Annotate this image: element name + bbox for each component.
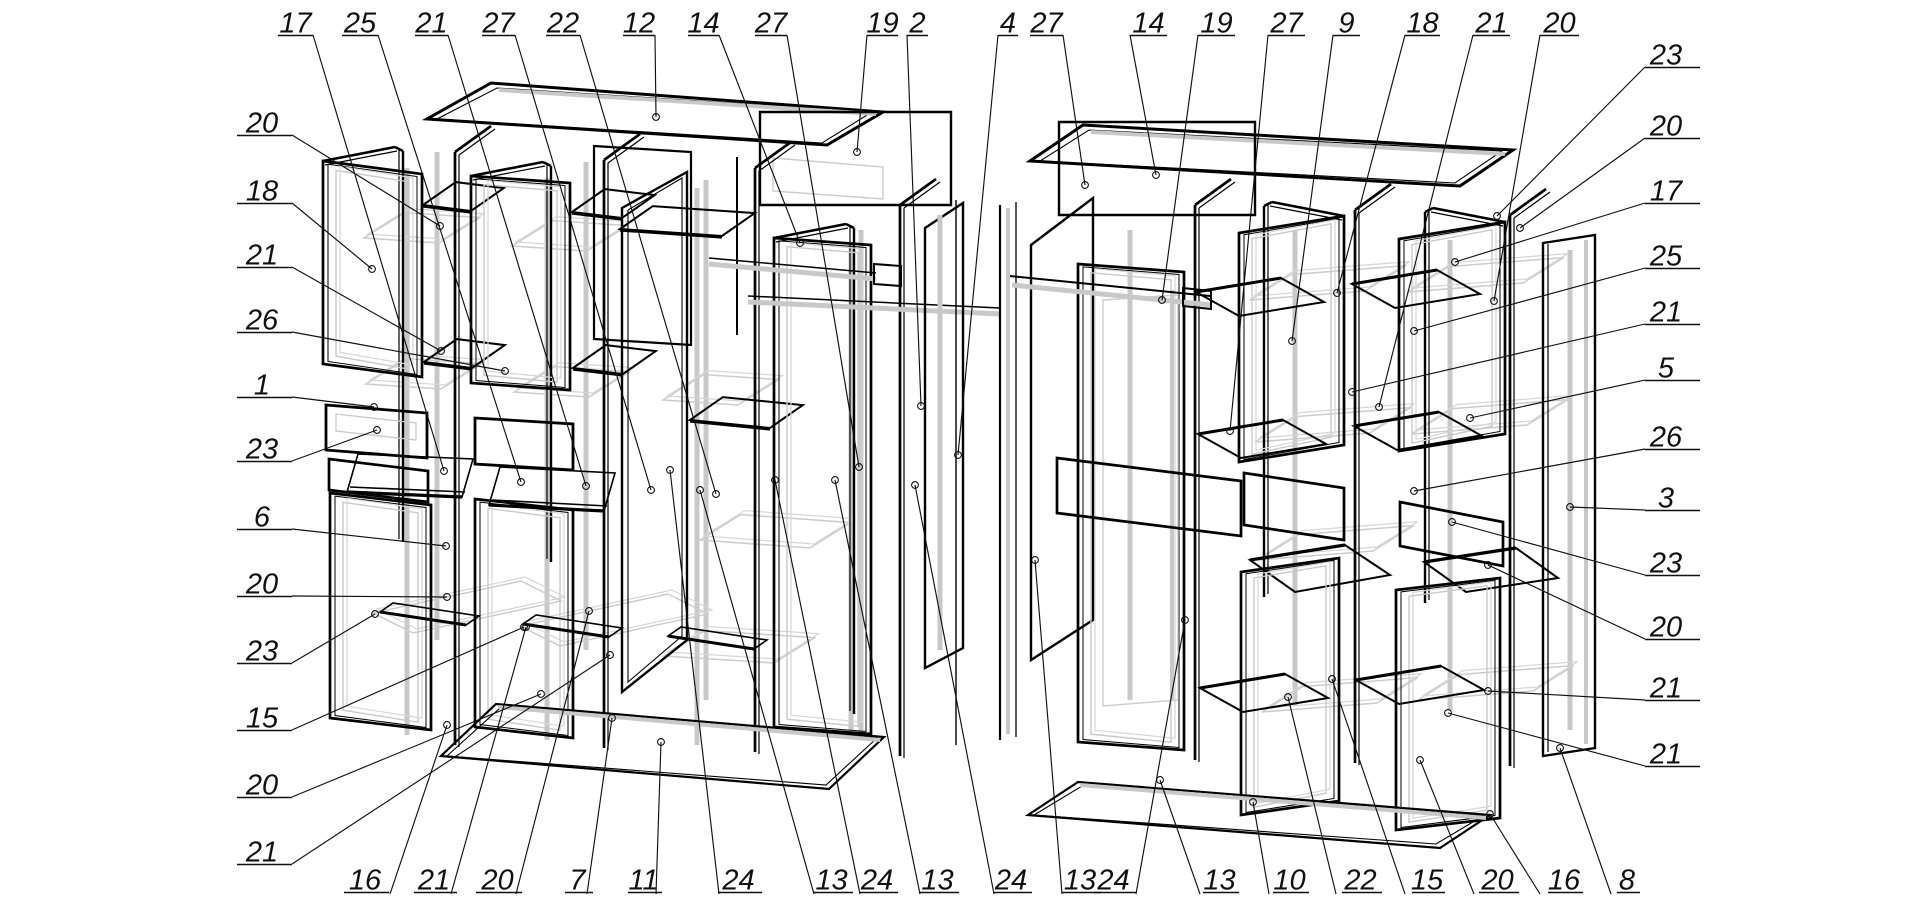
svg-text:20: 20 [1542,8,1575,40]
svg-text:19: 19 [866,8,898,40]
svg-text:21: 21 [1649,297,1682,329]
svg-text:11: 11 [628,865,658,897]
svg-text:26: 26 [1649,422,1683,454]
svg-text:22: 22 [546,8,579,40]
svg-text:18: 18 [246,176,278,208]
svg-text:9: 9 [1338,8,1354,40]
svg-text:23: 23 [245,636,278,668]
svg-text:22: 22 [1343,865,1376,897]
svg-text:21: 21 [245,240,278,272]
svg-text:24: 24 [721,865,754,897]
svg-text:20: 20 [480,865,513,897]
svg-text:3: 3 [1658,483,1674,515]
svg-text:21: 21 [1649,739,1682,771]
svg-text:23: 23 [1649,548,1682,580]
svg-text:2: 2 [908,8,925,40]
svg-text:10: 10 [1273,865,1305,897]
svg-text:8: 8 [1619,865,1635,897]
svg-text:18: 18 [1406,8,1438,40]
svg-text:13: 13 [815,865,847,897]
svg-text:15: 15 [1411,865,1444,897]
svg-text:20: 20 [1480,865,1513,897]
svg-text:16: 16 [349,865,382,897]
svg-text:27: 27 [1269,8,1304,40]
svg-text:27: 27 [481,8,516,40]
svg-text:6: 6 [254,502,271,534]
svg-text:20: 20 [245,770,278,802]
svg-text:27: 27 [1029,8,1064,40]
svg-text:20: 20 [1649,612,1682,644]
svg-text:24: 24 [860,865,893,897]
svg-text:26: 26 [245,305,279,337]
svg-text:16: 16 [1548,865,1581,897]
svg-text:17: 17 [1650,176,1684,208]
svg-text:20: 20 [245,108,278,140]
svg-text:20: 20 [1649,111,1682,143]
svg-text:13: 13 [1064,865,1096,897]
svg-text:24: 24 [1096,865,1129,897]
svg-text:25: 25 [1649,241,1683,273]
svg-text:19: 19 [1200,8,1232,40]
svg-text:13: 13 [1203,865,1235,897]
svg-text:21: 21 [245,837,278,869]
svg-text:7: 7 [569,865,587,897]
svg-text:24: 24 [994,865,1027,897]
svg-text:21: 21 [1649,673,1682,705]
svg-text:27: 27 [754,8,789,40]
svg-text:15: 15 [246,703,279,735]
svg-text:14: 14 [1132,8,1164,40]
svg-text:21: 21 [414,8,447,40]
svg-text:14: 14 [687,8,719,40]
svg-text:23: 23 [245,434,278,466]
svg-text:20: 20 [245,569,278,601]
svg-text:25: 25 [343,8,377,40]
svg-text:23: 23 [1649,40,1682,72]
svg-text:21: 21 [1474,8,1507,40]
svg-text:17: 17 [279,8,313,40]
svg-text:13: 13 [921,865,953,897]
svg-text:5: 5 [1658,353,1675,385]
svg-text:12: 12 [623,8,655,40]
svg-text:21: 21 [417,865,450,897]
svg-text:1: 1 [254,370,270,402]
svg-text:4: 4 [1000,8,1016,40]
